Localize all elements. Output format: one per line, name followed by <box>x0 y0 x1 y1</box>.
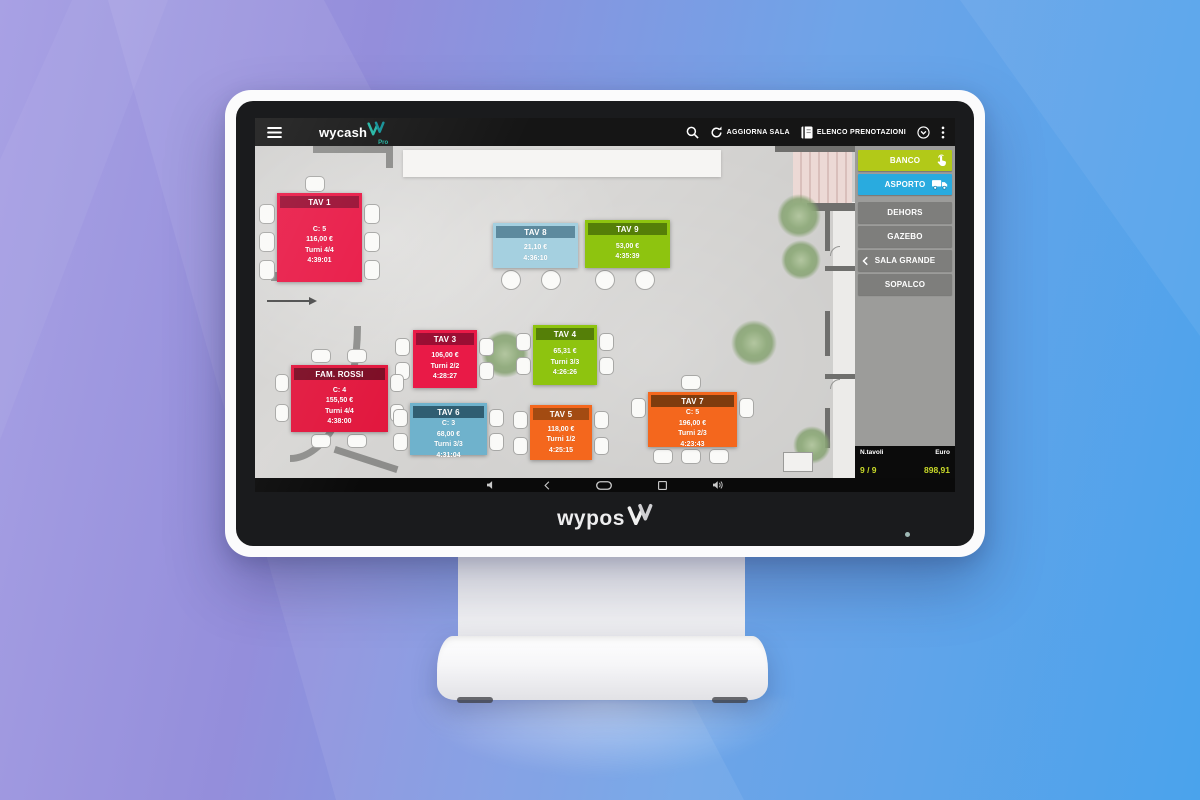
chair <box>347 349 367 363</box>
table-info-line: C: 4 <box>333 386 346 397</box>
table-info: C: 4155,50 €Turni 4/44:38:00 <box>291 381 388 432</box>
table-info-line: C: 5 <box>686 408 699 419</box>
app-logo-text: wycash <box>319 125 367 140</box>
room-label: BANCO <box>890 156 920 165</box>
wall-dark <box>825 211 830 251</box>
wall-dark <box>825 266 855 271</box>
table-info-line: Turni 1/2 <box>547 435 576 446</box>
chair <box>364 232 380 252</box>
chair <box>681 449 701 464</box>
kebab-menu-icon <box>941 126 945 139</box>
wall <box>386 146 393 168</box>
table-info-line: 4:31:04 <box>436 451 460 462</box>
chair <box>259 232 275 252</box>
room-button-gazebo[interactable]: GAZEBO <box>858 226 952 247</box>
euro-total-value: 898,91 <box>924 465 950 475</box>
table-info-line: 106,00 € <box>431 351 458 362</box>
app-logo-sub: Pro <box>378 140 388 146</box>
chair <box>489 409 504 427</box>
table-info-line: 4:26:26 <box>553 368 577 379</box>
main-area: TAV 1C: 5116,00 €Turni 4/44:39:01TAV 821… <box>255 146 955 478</box>
table-info-line: Turni 4/4 <box>305 246 334 257</box>
room-button-sala-grande[interactable]: SALA GRANDE <box>858 250 952 271</box>
volume-up-button[interactable] <box>713 481 724 489</box>
table-name: TAV 8 <box>496 226 575 238</box>
menu-button[interactable] <box>267 127 282 138</box>
stand-base <box>437 636 768 700</box>
appbar: wycash Pro <box>255 118 955 146</box>
sidebar-filler <box>855 297 955 447</box>
chair <box>489 433 504 451</box>
search-button[interactable] <box>686 126 699 139</box>
truck-icon <box>932 179 948 190</box>
chair <box>599 357 614 375</box>
chair <box>364 260 380 280</box>
table-info-line: 68,00 € <box>437 430 460 441</box>
table-info: C: 5116,00 €Turni 4/44:39:01 <box>277 209 362 282</box>
overflow-menu-button[interactable] <box>941 126 945 139</box>
table-info-line: 21,10 € <box>524 243 547 254</box>
table-info-line: 4:28:27 <box>433 372 457 383</box>
room-button-sopalco[interactable]: SOPALCO <box>858 274 952 295</box>
hamburger-icon <box>267 127 282 138</box>
chair-round <box>595 270 615 290</box>
chair <box>275 404 289 422</box>
table-info: 53,00 €4:35:39 <box>585 236 670 268</box>
chair <box>305 176 325 192</box>
table-info-line: Turni 4/4 <box>325 407 354 418</box>
scene: wycash Pro <box>0 0 1200 800</box>
table-card-tav-6[interactable]: TAV 6C: 368,00 €Turni 3/34:31:04 <box>410 403 487 455</box>
table-card-tav-1[interactable]: TAV 1C: 5116,00 €Turni 4/44:39:01 <box>277 193 362 282</box>
screen: wycash Pro <box>255 118 955 492</box>
chair <box>390 374 404 392</box>
room-label: SALA GRANDE <box>875 256 936 265</box>
table-name: TAV 3 <box>416 333 474 345</box>
chair <box>631 398 646 418</box>
wycash-logo-icon <box>367 121 385 136</box>
room-label: ASPORTO <box>885 180 926 189</box>
chair <box>311 349 331 363</box>
tree <box>781 240 821 280</box>
totals-footer: N.tavoli 9 / 9 Euro 898,91 <box>855 446 955 478</box>
table-name: TAV 4 <box>536 328 594 340</box>
chair <box>513 437 528 455</box>
table-info-line: Turni 2/2 <box>431 362 460 373</box>
table-card-tav-7[interactable]: TAV 7C: 5196,00 €Turni 2/34:23:43 <box>648 392 737 447</box>
room-label: GAZEBO <box>887 232 922 241</box>
table-info-line: 4:25:15 <box>549 446 573 457</box>
box <box>783 452 813 472</box>
wall <box>334 446 399 473</box>
counter <box>403 150 721 177</box>
table-name: TAV 5 <box>533 408 589 420</box>
power-led <box>905 532 910 537</box>
table-name: TAV 7 <box>651 395 734 407</box>
back-button[interactable] <box>544 481 550 490</box>
search-icon <box>686 126 699 139</box>
table-info-line: C: 5 <box>313 225 326 236</box>
chair <box>594 437 609 455</box>
chair <box>681 375 701 390</box>
chair <box>479 338 494 356</box>
euro-total: Euro 898,91 <box>924 449 950 475</box>
chair <box>393 409 408 427</box>
chair <box>364 204 380 224</box>
refresh-room-label: AGGIORNA SALA <box>727 129 790 136</box>
table-info-line: 4:23:43 <box>680 440 704 451</box>
table-info: 21,10 €4:36:10 <box>493 239 578 268</box>
chair <box>259 204 275 224</box>
tables-count-label: N.tavoli <box>860 449 883 456</box>
reservations-button[interactable]: ELENCO PRENOTAZIONI <box>801 126 906 139</box>
table-info-line: Turni 2/3 <box>678 429 707 440</box>
reservations-book-icon <box>801 126 813 139</box>
room-button-banco[interactable]: BANCO <box>858 150 952 171</box>
chair <box>311 434 331 448</box>
volume-down-button[interactable] <box>487 481 498 489</box>
white-area <box>833 202 855 478</box>
chair-round <box>635 270 655 290</box>
chair <box>275 374 289 392</box>
chair <box>479 362 494 380</box>
table-card-fam-rossi[interactable]: FAM. ROSSIC: 4155,50 €Turni 4/44:38:00 <box>291 365 388 432</box>
room-label: SOPALCO <box>885 280 925 289</box>
table-name: TAV 1 <box>280 196 359 208</box>
room-button-asporto[interactable]: ASPORTO <box>858 174 952 195</box>
chair <box>516 333 531 351</box>
wall-dark <box>825 311 830 356</box>
chair-round <box>541 270 561 290</box>
table-info-line: 155,50 € <box>326 396 353 407</box>
tables-count-value: 9 / 9 <box>860 465 883 475</box>
table-card-tav-8[interactable]: TAV 821,10 €4:36:10 <box>493 223 578 268</box>
table-info-line: 196,00 € <box>679 419 706 430</box>
euro-total-label: Euro <box>935 449 950 456</box>
collapse-button[interactable] <box>917 126 930 139</box>
table-name: TAV 6 <box>413 406 484 418</box>
chair <box>395 338 410 356</box>
chevron-down-circle-icon <box>917 126 930 139</box>
pos-terminal-monitor: wycash Pro <box>225 90 985 557</box>
room-sidebar: BANCOASPORTODEHORSGAZEBOSALA GRANDESOPAL… <box>855 146 955 478</box>
chair <box>516 357 531 375</box>
chair <box>259 260 275 280</box>
table-card-tav-9[interactable]: TAV 953,00 €4:35:39 <box>585 220 670 268</box>
chair <box>599 333 614 351</box>
chair <box>393 433 408 451</box>
table-info: C: 5196,00 €Turni 2/34:23:43 <box>648 408 737 450</box>
floorplan: TAV 1C: 5116,00 €Turni 4/44:39:01TAV 821… <box>255 146 855 478</box>
table-card-tav-3[interactable]: TAV 3106,00 €Turni 2/24:28:27 <box>413 330 477 388</box>
wall <box>313 146 393 153</box>
table-card-tav-4[interactable]: TAV 465,31 €Turni 3/34:26:26 <box>533 325 597 385</box>
home-button[interactable] <box>596 481 612 490</box>
table-name: TAV 9 <box>588 223 667 235</box>
surface-reflection <box>410 698 800 778</box>
table-info-line: 4:38:00 <box>327 417 351 428</box>
app-logo: wycash Pro <box>319 125 385 140</box>
room-button-dehors[interactable]: DEHORS <box>858 202 952 223</box>
back-chevron-icon <box>862 256 868 266</box>
arrow <box>267 300 315 302</box>
table-info: 65,31 €Turni 3/34:26:26 <box>533 341 597 385</box>
chair <box>347 434 367 448</box>
chair <box>739 398 754 418</box>
table-info-line: 4:39:01 <box>307 256 331 267</box>
chair <box>513 411 528 429</box>
table-info-line: 116,00 € <box>306 235 333 246</box>
reservations-label: ELENCO PRENOTAZIONI <box>817 129 906 136</box>
wall-dark <box>825 374 855 379</box>
table-info: 118,00 €Turni 1/24:25:15 <box>530 421 592 460</box>
chair <box>594 411 609 429</box>
tree <box>777 194 821 238</box>
monitor-bezel: wycash Pro <box>236 101 974 546</box>
table-name: FAM. ROSSI <box>294 368 385 380</box>
refresh-icon <box>710 126 723 139</box>
chair <box>709 449 729 464</box>
table-info-line: C: 3 <box>442 419 455 430</box>
table-info: 106,00 €Turni 2/24:28:27 <box>413 346 477 388</box>
chair-round <box>501 270 521 290</box>
recents-button[interactable] <box>658 481 667 490</box>
table-info: C: 368,00 €Turni 3/34:31:04 <box>410 419 487 461</box>
table-card-tav-5[interactable]: TAV 5118,00 €Turni 1/24:25:15 <box>530 405 592 460</box>
tables-count: N.tavoli 9 / 9 <box>860 449 883 475</box>
table-info-line: 53,00 € <box>616 242 639 253</box>
table-info-line: 118,00 € <box>548 425 575 436</box>
tree <box>731 320 777 366</box>
device-logo: wypos <box>236 501 974 537</box>
android-navbar <box>255 478 955 492</box>
refresh-room-button[interactable]: AGGIORNA SALA <box>710 126 790 139</box>
device-logo-text: wypos <box>557 507 625 531</box>
room-label: DEHORS <box>887 208 922 217</box>
table-info-line: 4:36:10 <box>523 254 547 265</box>
tap-icon <box>935 154 948 167</box>
table-info-line: Turni 3/3 <box>434 440 463 451</box>
wypos-logo-icon <box>627 503 653 535</box>
table-info-line: Turni 3/3 <box>551 358 580 369</box>
table-info-line: 4:35:39 <box>615 252 639 263</box>
table-info-line: 65,31 € <box>553 347 576 358</box>
chair <box>653 449 673 464</box>
room-list: BANCOASPORTODEHORSGAZEBOSALA GRANDESOPAL… <box>855 146 955 297</box>
